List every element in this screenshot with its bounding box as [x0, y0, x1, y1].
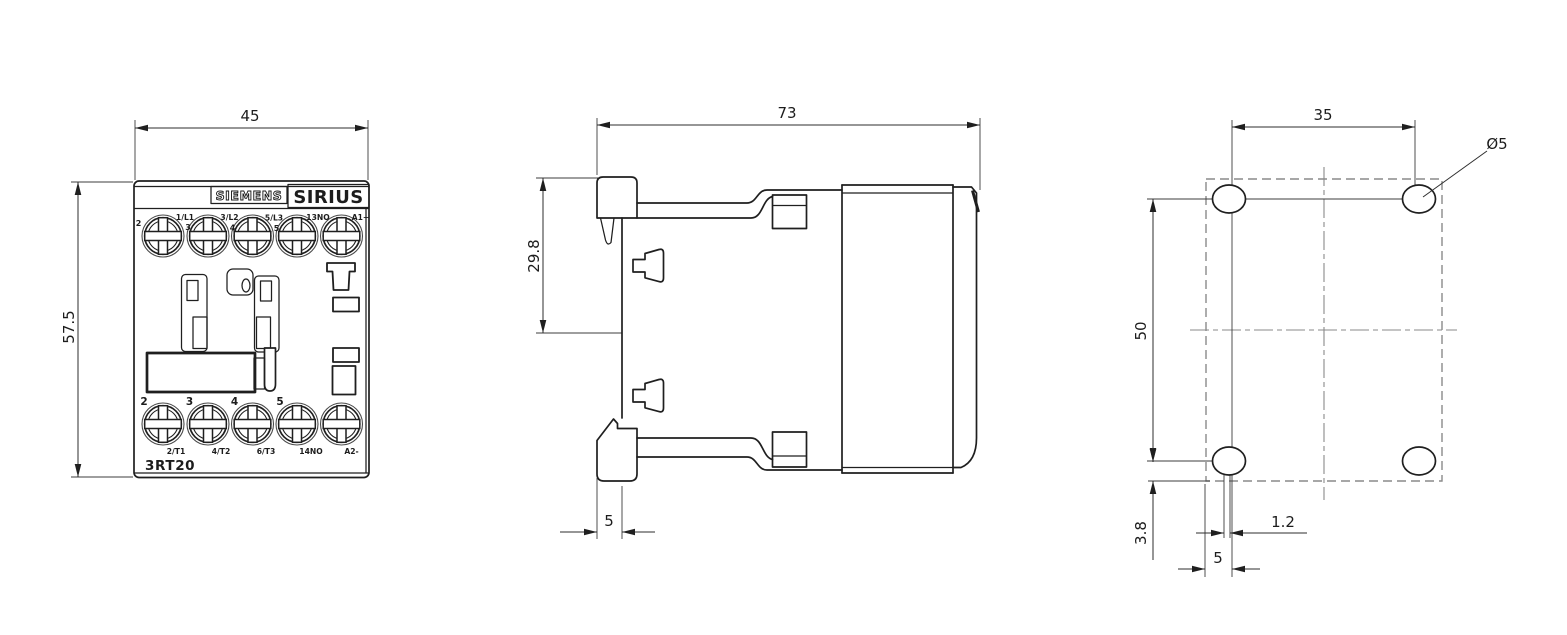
plan-bottom-offset-value: 3.8: [1132, 521, 1150, 545]
side-main-body: [842, 185, 979, 473]
front-centre-details: [147, 263, 359, 395]
terminal-screw: [321, 403, 363, 445]
mounting-hole: [1403, 185, 1436, 213]
plan-slot-value: 1.2: [1271, 513, 1295, 531]
terminal-label: 1/L1: [176, 213, 194, 222]
side-profile: [597, 177, 979, 481]
plan-edge-value: 5: [1213, 549, 1223, 567]
mounting-hole: [1403, 447, 1436, 475]
terminal-label: A1+: [352, 213, 370, 222]
latch-knob-bottom: [633, 379, 664, 412]
hole-diameter-value: Ø5: [1486, 135, 1507, 153]
plan-h-spacing-value: 35: [1313, 106, 1332, 124]
side-catch-value: 29.8: [525, 239, 543, 272]
plan-dim-slot: 1.2: [1196, 513, 1307, 536]
coil-terminal-bottom: [773, 432, 807, 467]
hook-claw-top: [601, 218, 615, 244]
plan-dim-edge: 5: [1178, 549, 1260, 572]
terminal-label: 4/T2: [212, 447, 231, 456]
side-hook-value: 5: [604, 512, 614, 530]
pole-number: 5: [274, 224, 280, 233]
plan-dim-horizontal: 35: [1232, 106, 1415, 130]
front-dim-width: 45: [135, 107, 368, 180]
side-dim-catch: 29.8: [525, 178, 622, 333]
pole-number: 2: [140, 396, 147, 408]
terminal-label: 3/L2: [220, 213, 238, 222]
plan-v-spacing-value: 50: [1132, 321, 1150, 340]
drawing-svg: 45 57.5 SIEMENS SIRIUS 3RT20: [0, 0, 1567, 635]
terminal-screw: [276, 403, 318, 445]
plan-dim-bottom-offset: 3.8: [1132, 430, 1156, 560]
pole-number: 2: [136, 219, 142, 228]
pole-number: 5: [276, 396, 283, 408]
side-depth-value: 73: [777, 104, 796, 122]
plan-dim-vertical: 50: [1132, 199, 1156, 461]
brand-logo: SIEMENS: [216, 188, 283, 203]
accessory-slot-right: [255, 276, 280, 352]
front-view: 45 57.5 SIEMENS SIRIUS 3RT20: [60, 107, 369, 478]
side-view: 73 29.8: [525, 104, 980, 539]
terminal-label: 6/T3: [257, 447, 276, 456]
side-dim-depth: 73: [597, 104, 980, 190]
coil-terminal-top: [773, 195, 807, 229]
terminal-label: 5/L3: [265, 214, 283, 223]
model-label: 3RT20: [145, 458, 195, 474]
terminal-label: 13NO: [306, 213, 330, 222]
pole-number: 3: [186, 396, 193, 408]
dimension-drawing: 45 57.5 SIEMENS SIRIUS 3RT20: [0, 0, 1567, 635]
hole-diameter-callout: Ø5: [1423, 135, 1508, 197]
drilling-plan: 35 Ø5 50 3.8 1.2: [1132, 106, 1508, 577]
terminal-screw: [232, 403, 274, 445]
latch-knob-top: [633, 249, 664, 282]
mounting-hole: [1213, 447, 1246, 475]
corner-hatch: [973, 191, 979, 213]
din-rail-hook-bottom: [597, 419, 637, 481]
terminal-screw: [142, 403, 184, 445]
series-label: SIRIUS: [293, 187, 363, 208]
aux-contact-tab: [327, 263, 355, 290]
front-dim-height: 57.5: [60, 182, 133, 477]
pole-number: 4: [230, 224, 236, 233]
label-plate: [147, 353, 255, 392]
din-rail-hook-top: [597, 177, 637, 218]
side-dim-hook: 5: [560, 478, 655, 539]
release-lever: [265, 348, 276, 391]
terminal-label: 14NO: [299, 447, 323, 456]
mounting-hole: [1213, 185, 1246, 213]
terminal-label: A2-: [344, 447, 358, 456]
front-height-value: 57.5: [60, 310, 78, 343]
terminal-screw: [187, 403, 229, 445]
front-width-value: 45: [240, 107, 259, 125]
pole-number: 4: [231, 396, 238, 408]
front-terminals-bottom: 2 3 4 5 2/T1 4/T2 6/T3 14NO A2-: [140, 396, 362, 456]
front-terminals-top: 1/L1 3/L2 5/L3 13NO A1+ 2 3 4 5: [136, 213, 370, 257]
pole-number: 3: [185, 223, 191, 232]
terminal-label: 2/T1: [167, 447, 186, 456]
accessory-slot-left: [182, 275, 208, 352]
